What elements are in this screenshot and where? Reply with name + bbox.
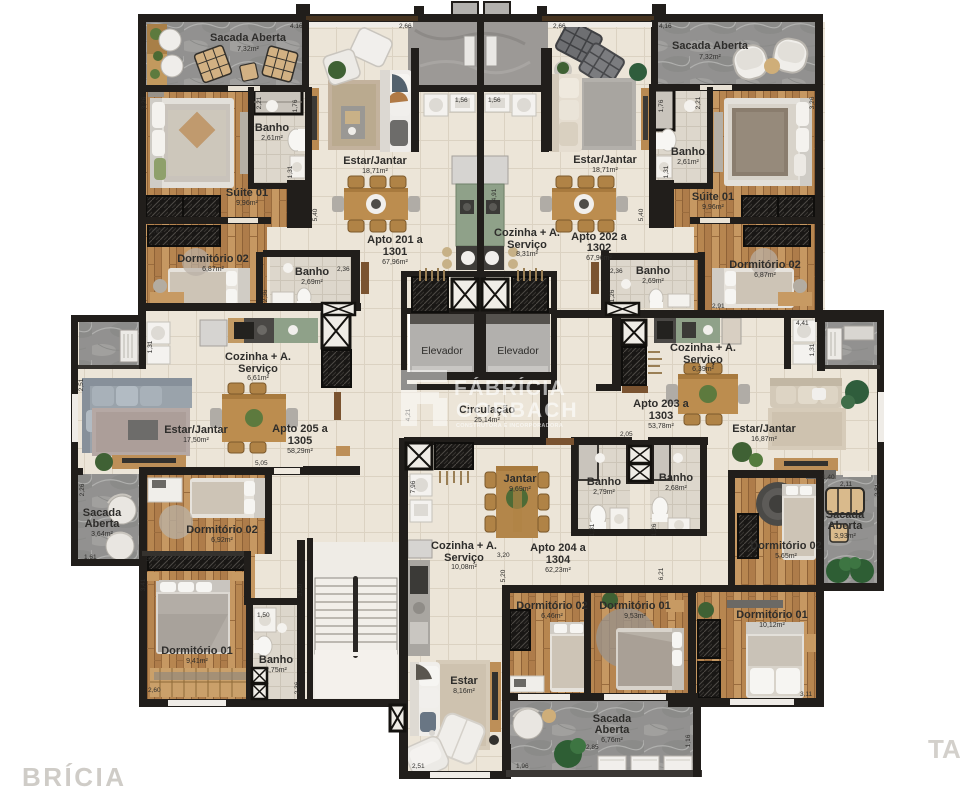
svg-text:2,75m²: 2,75m² [265,667,287,674]
svg-text:53,78m²: 53,78m² [648,423,674,430]
svg-text:Dormitório 01: Dormitório 01 [736,609,808,621]
svg-text:Dormitório 01: Dormitório 01 [599,600,671,612]
svg-text:3,11: 3,11 [800,691,813,698]
svg-text:Jantar: Jantar [503,473,537,485]
svg-text:2,91: 2,91 [712,303,725,310]
svg-text:2,21: 2,21 [695,96,702,109]
svg-text:Serviço: Serviço [683,354,723,366]
svg-text:Serviço: Serviço [507,239,547,251]
svg-text:Dormitório 01: Dormitório 01 [161,645,233,657]
svg-text:2,36: 2,36 [337,266,350,273]
svg-text:Banho: Banho [295,266,330,278]
svg-text:67,96m²: 67,96m² [382,259,408,266]
svg-text:58,29m²: 58,29m² [287,448,313,455]
svg-text:Estar/Jantar: Estar/Jantar [573,154,637,166]
svg-text:1303: 1303 [649,410,673,422]
svg-text:CONSTRUTORA E INCORPORADORA: CONSTRUTORA E INCORPORADORA [456,423,563,429]
svg-text:3,50: 3,50 [297,583,304,596]
svg-text:1,56: 1,56 [488,97,501,104]
svg-text:67,96m²: 67,96m² [586,255,612,262]
svg-text:Estar/Jantar: Estar/Jantar [732,423,796,435]
svg-text:GORBACH: GORBACH [456,399,579,422]
svg-text:1304: 1304 [546,554,571,566]
svg-text:2,36: 2,36 [262,289,269,302]
svg-text:9,69m²: 9,69m² [509,486,531,493]
svg-text:2,61m²: 2,61m² [677,159,699,166]
svg-text:6,61m²: 6,61m² [247,375,269,382]
svg-text:Estar/Jantar: Estar/Jantar [343,155,407,167]
svg-text:4,91: 4,91 [491,188,498,201]
svg-text:TA: TA [928,734,960,764]
svg-text:2,79m²: 2,79m² [593,489,615,496]
svg-text:9,96m²: 9,96m² [702,204,724,211]
svg-text:1,40: 1,40 [822,474,835,481]
svg-text:1,96: 1,96 [516,763,529,770]
svg-text:Apto 204 a: Apto 204 a [530,542,587,554]
svg-text:Banho: Banho [259,654,294,666]
svg-text:2,91: 2,91 [150,228,163,235]
svg-text:6,87m²: 6,87m² [754,272,776,279]
svg-text:6,76m²: 6,76m² [601,737,623,744]
svg-text:2,36: 2,36 [610,268,623,275]
svg-text:Banho: Banho [659,472,694,484]
svg-text:5,05: 5,05 [255,460,268,467]
svg-text:Serviço: Serviço [444,552,484,564]
svg-text:9,41m²: 9,41m² [186,658,208,665]
svg-text:62,23m²: 62,23m² [545,567,571,574]
svg-text:9,96m²: 9,96m² [236,200,258,207]
svg-text:Estar: Estar [450,675,478,687]
svg-text:2,68m²: 2,68m² [665,485,687,492]
svg-text:Sacada Aberta: Sacada Aberta [210,32,287,44]
svg-text:2,21: 2,21 [256,96,263,109]
svg-text:1,16: 1,16 [685,734,692,747]
svg-text:Elevador: Elevador [497,345,539,357]
svg-text:Apto 205 a: Apto 205 a [272,423,329,435]
svg-text:2,66: 2,66 [553,23,566,30]
svg-text:Súite 01: Súite 01 [226,187,268,199]
svg-text:4,16: 4,16 [659,23,672,30]
svg-text:2,69m²: 2,69m² [642,278,664,285]
svg-text:Banho: Banho [671,146,706,158]
svg-text:Dormitório 02: Dormitório 02 [729,259,801,271]
svg-text:Cozinha + A.: Cozinha + A. [494,227,560,239]
svg-text:4.16: 4.16 [290,23,303,30]
svg-text:10,12m²: 10,12m² [759,622,785,629]
svg-text:Sacada Aberta: Sacada Aberta [672,40,749,52]
svg-text:Apto 203 a: Apto 203 a [633,398,690,410]
svg-text:1,76: 1,76 [658,99,665,112]
svg-text:2,61m²: 2,61m² [261,135,283,142]
svg-text:1301: 1301 [383,246,407,258]
svg-text:5,65m²: 5,65m² [775,553,797,560]
svg-text:2,66: 2,66 [399,23,412,30]
svg-text:10,08m²: 10,08m² [451,564,477,571]
svg-text:Dormitório 02: Dormitório 02 [186,524,258,536]
svg-text:1,76: 1,76 [292,99,299,112]
svg-text:6,21: 6,21 [658,567,665,580]
svg-text:5,40: 5,40 [638,208,645,221]
svg-text:Dormitório 02: Dormitório 02 [516,600,588,612]
svg-text:BRÍCIA: BRÍCIA [22,762,127,792]
svg-text:7,32m²: 7,32m² [699,54,721,61]
svg-text:6,46m²: 6,46m² [541,613,563,620]
svg-text:3,93m²: 3,93m² [834,533,856,540]
svg-text:5,40: 5,40 [312,208,319,221]
svg-text:1,56: 1,56 [455,97,468,104]
svg-text:6,87m²: 6,87m² [202,266,224,273]
svg-text:1,31: 1,31 [589,523,596,536]
svg-text:1,50: 1,50 [257,612,270,619]
svg-text:7,32m²: 7,32m² [237,46,259,53]
svg-text:2,05: 2,05 [620,431,633,438]
svg-text:4,41: 4,41 [796,320,809,327]
svg-text:5,20: 5,20 [500,569,507,582]
svg-text:3,64m²: 3,64m² [91,531,113,538]
svg-text:1,26: 1,26 [651,523,658,536]
svg-text:1302: 1302 [587,242,611,254]
svg-text:Aberta: Aberta [595,724,631,736]
svg-text:6,39m²: 6,39m² [692,366,714,373]
svg-text:2,11: 2,11 [840,481,853,488]
svg-text:1,26: 1,26 [609,289,616,302]
svg-text:3,26: 3,26 [809,96,816,109]
svg-text:18,71m²: 18,71m² [362,168,388,175]
svg-text:3,26: 3,26 [141,96,148,109]
svg-text:2,26: 2,26 [79,483,86,496]
svg-text:2,36: 2,36 [294,681,301,694]
svg-text:Súite 01: Súite 01 [692,191,734,203]
svg-text:2,51: 2,51 [412,763,425,770]
svg-text:2,85: 2,85 [586,744,599,751]
svg-text:Cozinha + A.: Cozinha + A. [431,540,497,552]
svg-text:2,81: 2,81 [874,483,881,496]
svg-text:2,69m²: 2,69m² [301,279,323,286]
svg-text:2,51: 2,51 [78,378,85,391]
svg-text:1,31: 1,31 [287,165,294,178]
svg-text:Estar/Jantar: Estar/Jantar [164,424,228,436]
svg-text:1,31: 1,31 [663,165,670,178]
svg-text:1,31: 1,31 [809,343,816,356]
svg-text:1,31: 1,31 [147,340,154,353]
svg-text:Serviço: Serviço [238,363,278,375]
svg-text:3,08: 3,08 [146,556,159,563]
svg-text:6,92m²: 6,92m² [211,537,233,544]
svg-text:Dormitório 02: Dormitório 02 [177,253,249,265]
svg-text:3,41: 3,41 [140,578,147,591]
svg-text:8,16m²: 8,16m² [453,688,475,695]
svg-text:Elevador: Elevador [421,345,463,357]
svg-text:8,31m²: 8,31m² [516,251,538,258]
svg-text:9,53m²: 9,53m² [624,613,646,620]
svg-text:2,60: 2,60 [148,687,161,694]
svg-text:Banho: Banho [255,122,290,134]
svg-text:Dormitório 02: Dormitório 02 [750,540,822,552]
svg-text:16,87m²: 16,87m² [751,436,777,443]
svg-text:18,71m²: 18,71m² [592,167,618,174]
svg-text:Cozinha + A.: Cozinha + A. [225,351,291,363]
svg-text:Aberta: Aberta [828,520,864,532]
svg-text:Aberta: Aberta [85,518,121,530]
svg-text:1,61: 1,61 [84,554,97,561]
svg-text:17,50m²: 17,50m² [183,437,209,444]
svg-text:Banho: Banho [636,265,671,277]
svg-text:Apto 201 a: Apto 201 a [367,234,424,246]
svg-text:Cozinha + A.: Cozinha + A. [670,342,736,354]
svg-text:Banho: Banho [587,476,622,488]
svg-text:3,20: 3,20 [497,552,510,559]
svg-text:1305: 1305 [288,435,312,447]
svg-text:FÁBRÍCIA: FÁBRÍCIA [454,377,566,400]
svg-text:7,96: 7,96 [410,480,417,493]
